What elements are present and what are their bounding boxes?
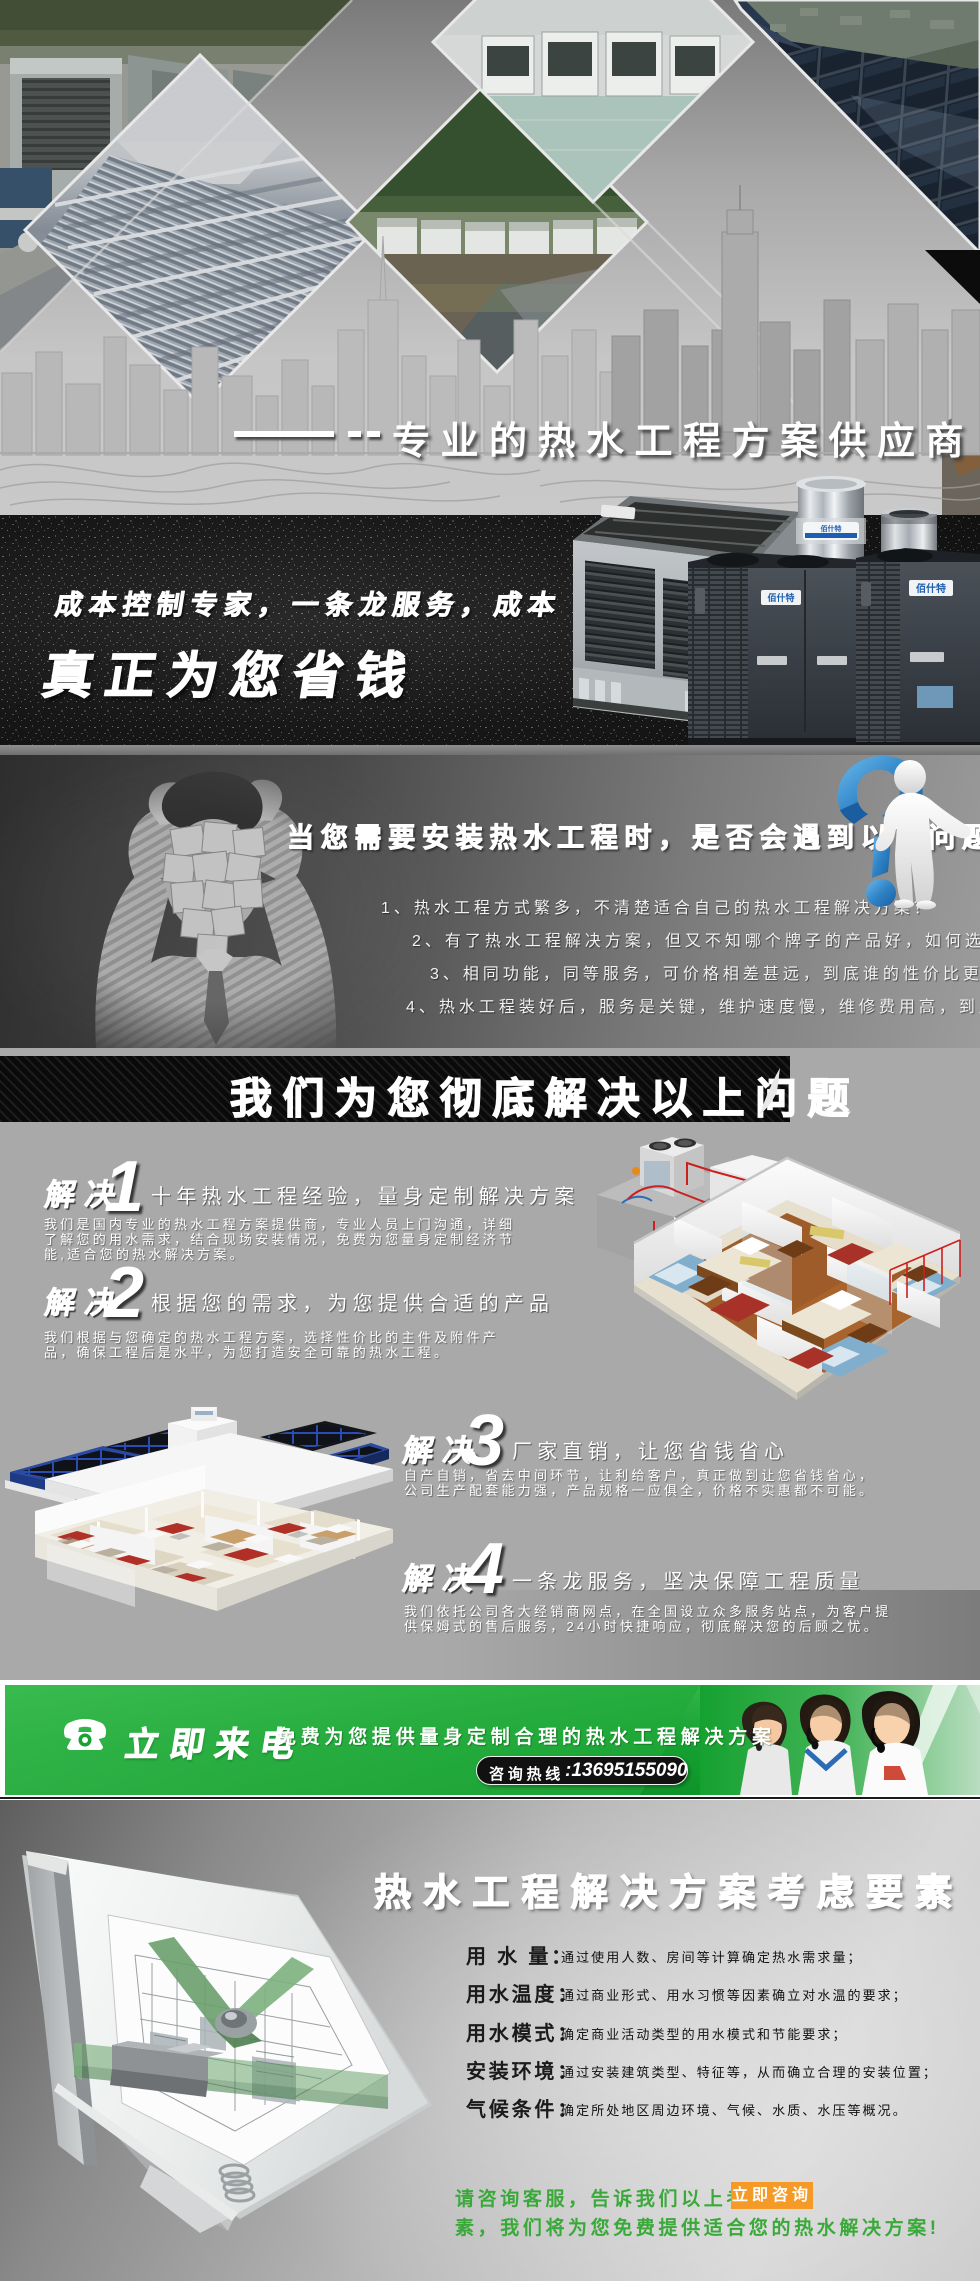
svg-text:佰什特: 佰什特 bbox=[916, 582, 946, 595]
svg-text:佰什特: 佰什特 bbox=[767, 592, 794, 603]
svg-text:佰什特: 佰什特 bbox=[821, 524, 842, 533]
